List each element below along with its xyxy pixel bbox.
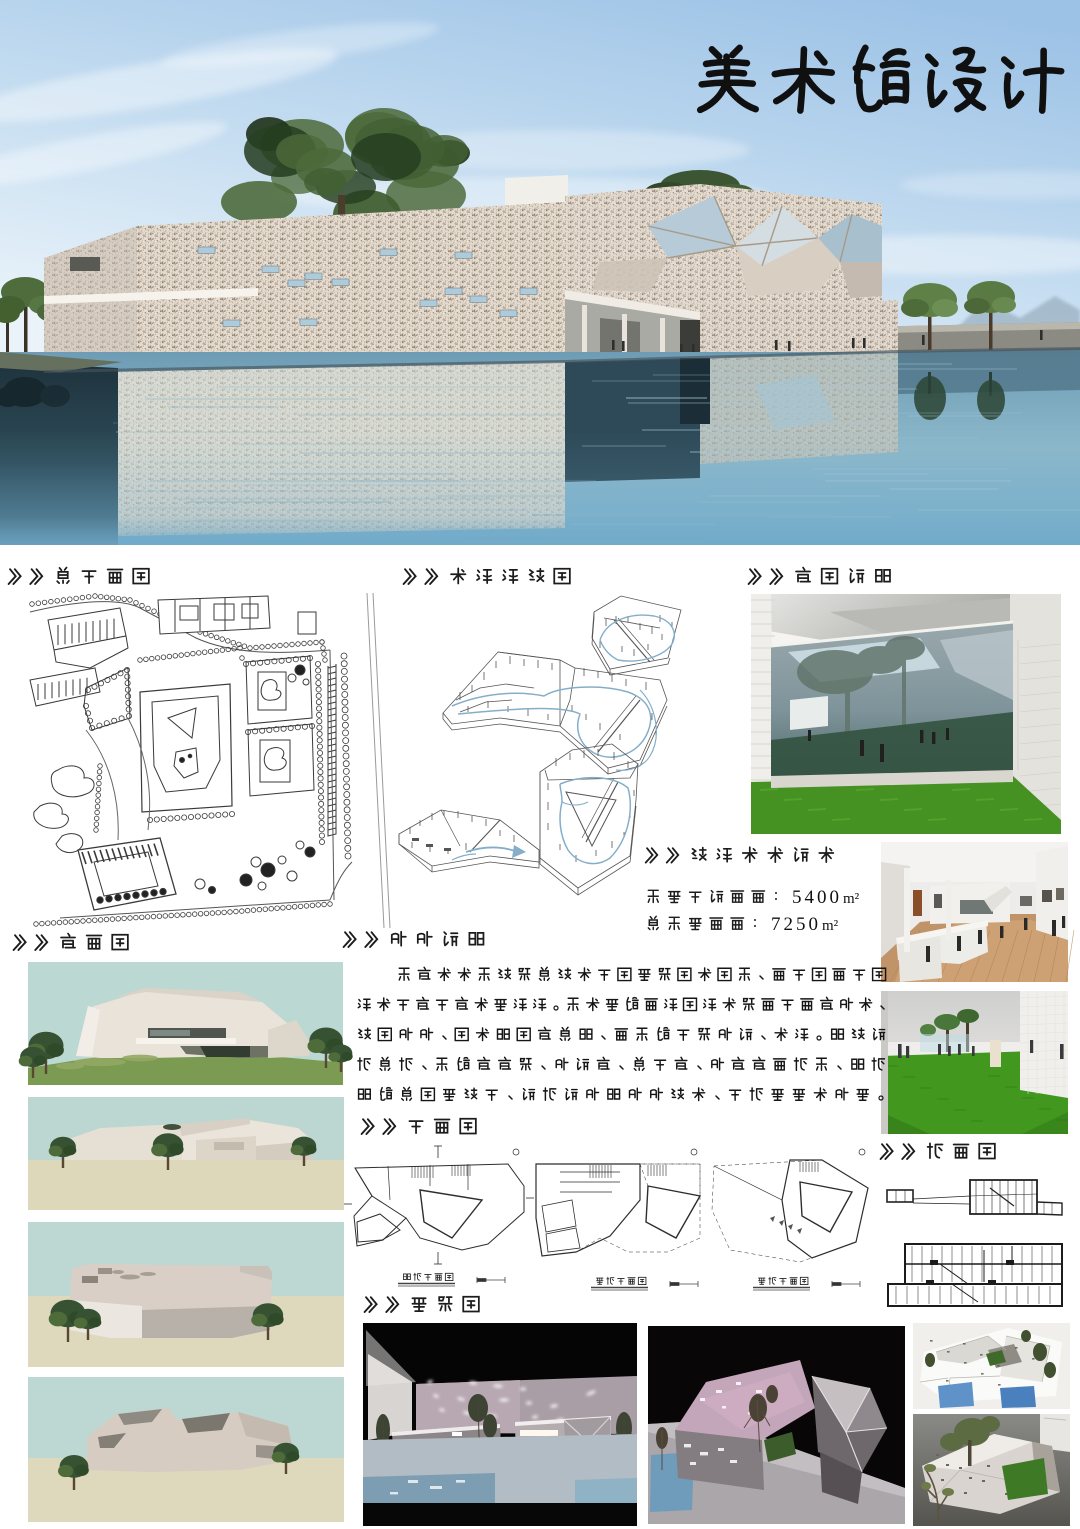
svg-text:m²: m²: [822, 918, 839, 934]
svg-text:7250: 7250: [771, 914, 821, 935]
svg-text:m²: m²: [843, 891, 860, 907]
svg-text:5400: 5400: [792, 887, 842, 908]
